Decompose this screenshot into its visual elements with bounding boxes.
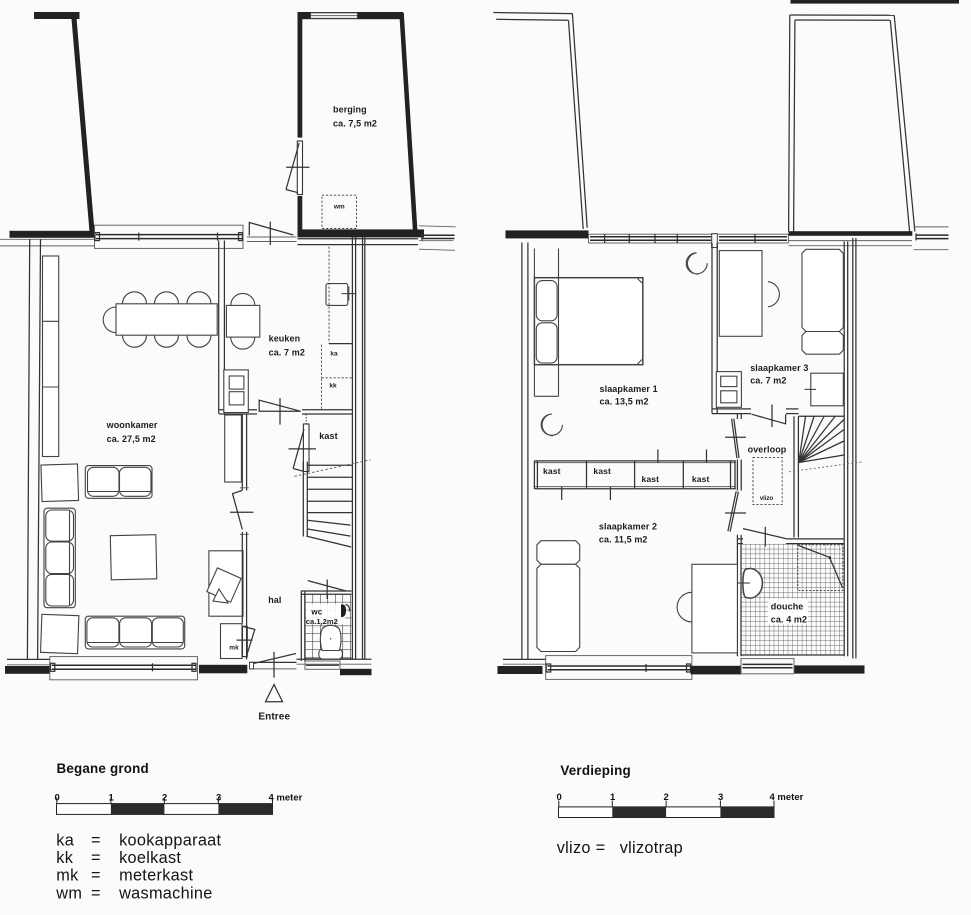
svg-text:=: = <box>91 884 101 902</box>
svg-text:slaapkamer 1: slaapkamer 1 <box>600 384 658 394</box>
svg-text:hal: hal <box>268 595 281 605</box>
svg-text:0: 0 <box>55 793 60 804</box>
svg-text:douche: douche <box>771 602 804 612</box>
svg-text:kk: kk <box>56 849 73 867</box>
svg-text:ca. 7,5 m2: ca. 7,5 m2 <box>333 119 377 129</box>
svg-text:Entree: Entree <box>258 712 290 723</box>
svg-text:wasmachine: wasmachine <box>118 884 213 902</box>
svg-text:kookapparaat: kookapparaat <box>119 831 221 849</box>
svg-text:berging: berging <box>333 105 367 115</box>
svg-text:ca. 7 m2: ca. 7 m2 <box>269 348 305 358</box>
svg-text:=: = <box>91 849 101 867</box>
svg-text:Begane grond: Begane grond <box>57 761 149 776</box>
svg-text:vlizo =: vlizo = <box>557 839 606 857</box>
svg-text:0: 0 <box>557 792 562 803</box>
svg-text:ca. 27,5 m2: ca. 27,5 m2 <box>107 434 156 444</box>
svg-text:=: = <box>91 831 101 849</box>
svg-text:ca. 13,5 m2: ca. 13,5 m2 <box>600 397 649 407</box>
svg-text:kast: kast <box>593 466 611 476</box>
svg-text:2: 2 <box>664 792 669 803</box>
svg-text:meterkast: meterkast <box>119 866 193 884</box>
svg-text:ca. 4 m2: ca. 4 m2 <box>771 615 807 625</box>
svg-text:keuken: keuken <box>269 334 301 344</box>
svg-text:wm: wm <box>55 884 82 902</box>
svg-text:ca.1,2m2: ca.1,2m2 <box>306 617 338 626</box>
svg-text:wc: wc <box>310 608 322 617</box>
svg-text:koelkast: koelkast <box>119 849 181 867</box>
svg-text:kast: kast <box>641 474 659 484</box>
svg-text:Verdieping: Verdieping <box>560 763 630 778</box>
svg-text:4 meter: 4 meter <box>770 792 804 803</box>
svg-text:ka: ka <box>330 351 338 358</box>
svg-text:woonkamer: woonkamer <box>106 420 158 430</box>
svg-text:=: = <box>91 866 101 884</box>
svg-text:mk: mk <box>229 645 239 652</box>
svg-text:kast: kast <box>692 474 710 484</box>
svg-text:mk: mk <box>56 866 79 884</box>
svg-text:4 meter: 4 meter <box>269 793 303 804</box>
svg-text:wm: wm <box>333 204 345 211</box>
svg-text:ka: ka <box>56 831 74 849</box>
svg-text:slaapkamer 2: slaapkamer 2 <box>599 522 657 532</box>
svg-text:overloop: overloop <box>748 444 787 454</box>
svg-text:1: 1 <box>109 793 115 804</box>
svg-text:vlizotrap: vlizotrap <box>620 839 683 857</box>
svg-text:kk: kk <box>329 382 337 389</box>
svg-text:1: 1 <box>610 792 616 803</box>
svg-text:3: 3 <box>718 792 723 803</box>
svg-text:vlizo: vlizo <box>760 496 774 502</box>
svg-text:kast: kast <box>319 431 337 441</box>
svg-text:3: 3 <box>216 793 221 804</box>
svg-text:kast: kast <box>543 466 561 476</box>
svg-text:ca. 7 m2: ca. 7 m2 <box>750 375 786 385</box>
svg-text:2: 2 <box>162 793 167 804</box>
svg-text:slaapkamer 3: slaapkamer 3 <box>750 363 808 373</box>
svg-text:ca. 11,5 m2: ca. 11,5 m2 <box>599 534 648 544</box>
